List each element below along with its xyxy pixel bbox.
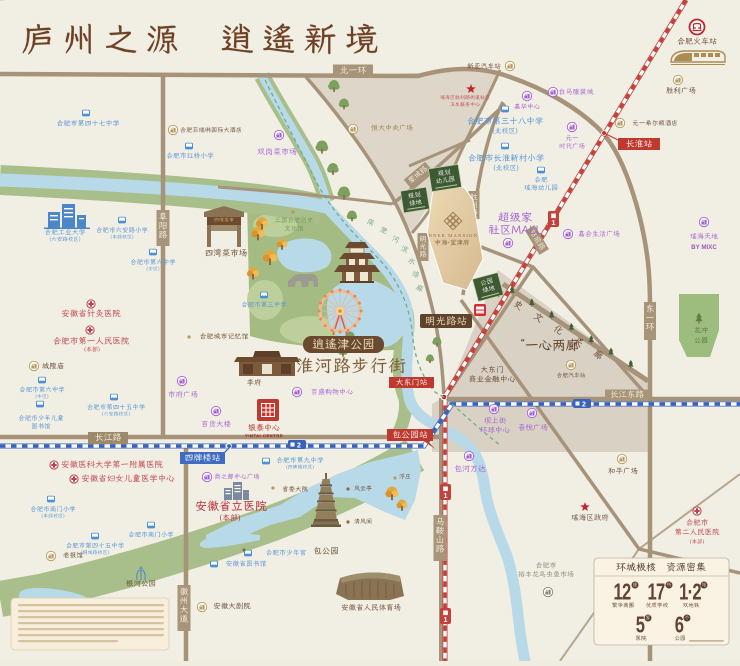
svg-text:1·2: 1·2: [679, 580, 701, 605]
svg-text:17: 17: [648, 580, 666, 605]
svg-text:1: 1: [443, 615, 447, 624]
svg-text:INNER MANSION: INNER MANSION: [426, 233, 478, 238]
svg-text:1: 1: [551, 218, 555, 227]
svg-text:2: 2: [297, 443, 301, 450]
svg-text:6: 6: [675, 613, 684, 638]
svg-text:BY MIXC: BY MIXC: [691, 244, 717, 251]
svg-text:2: 2: [582, 402, 586, 409]
svg-text:1: 1: [443, 491, 447, 500]
svg-text:12: 12: [614, 580, 632, 605]
svg-text:YINTAI CENTRE: YINTAI CENTRE: [245, 433, 283, 438]
svg-text:5: 5: [636, 613, 645, 638]
